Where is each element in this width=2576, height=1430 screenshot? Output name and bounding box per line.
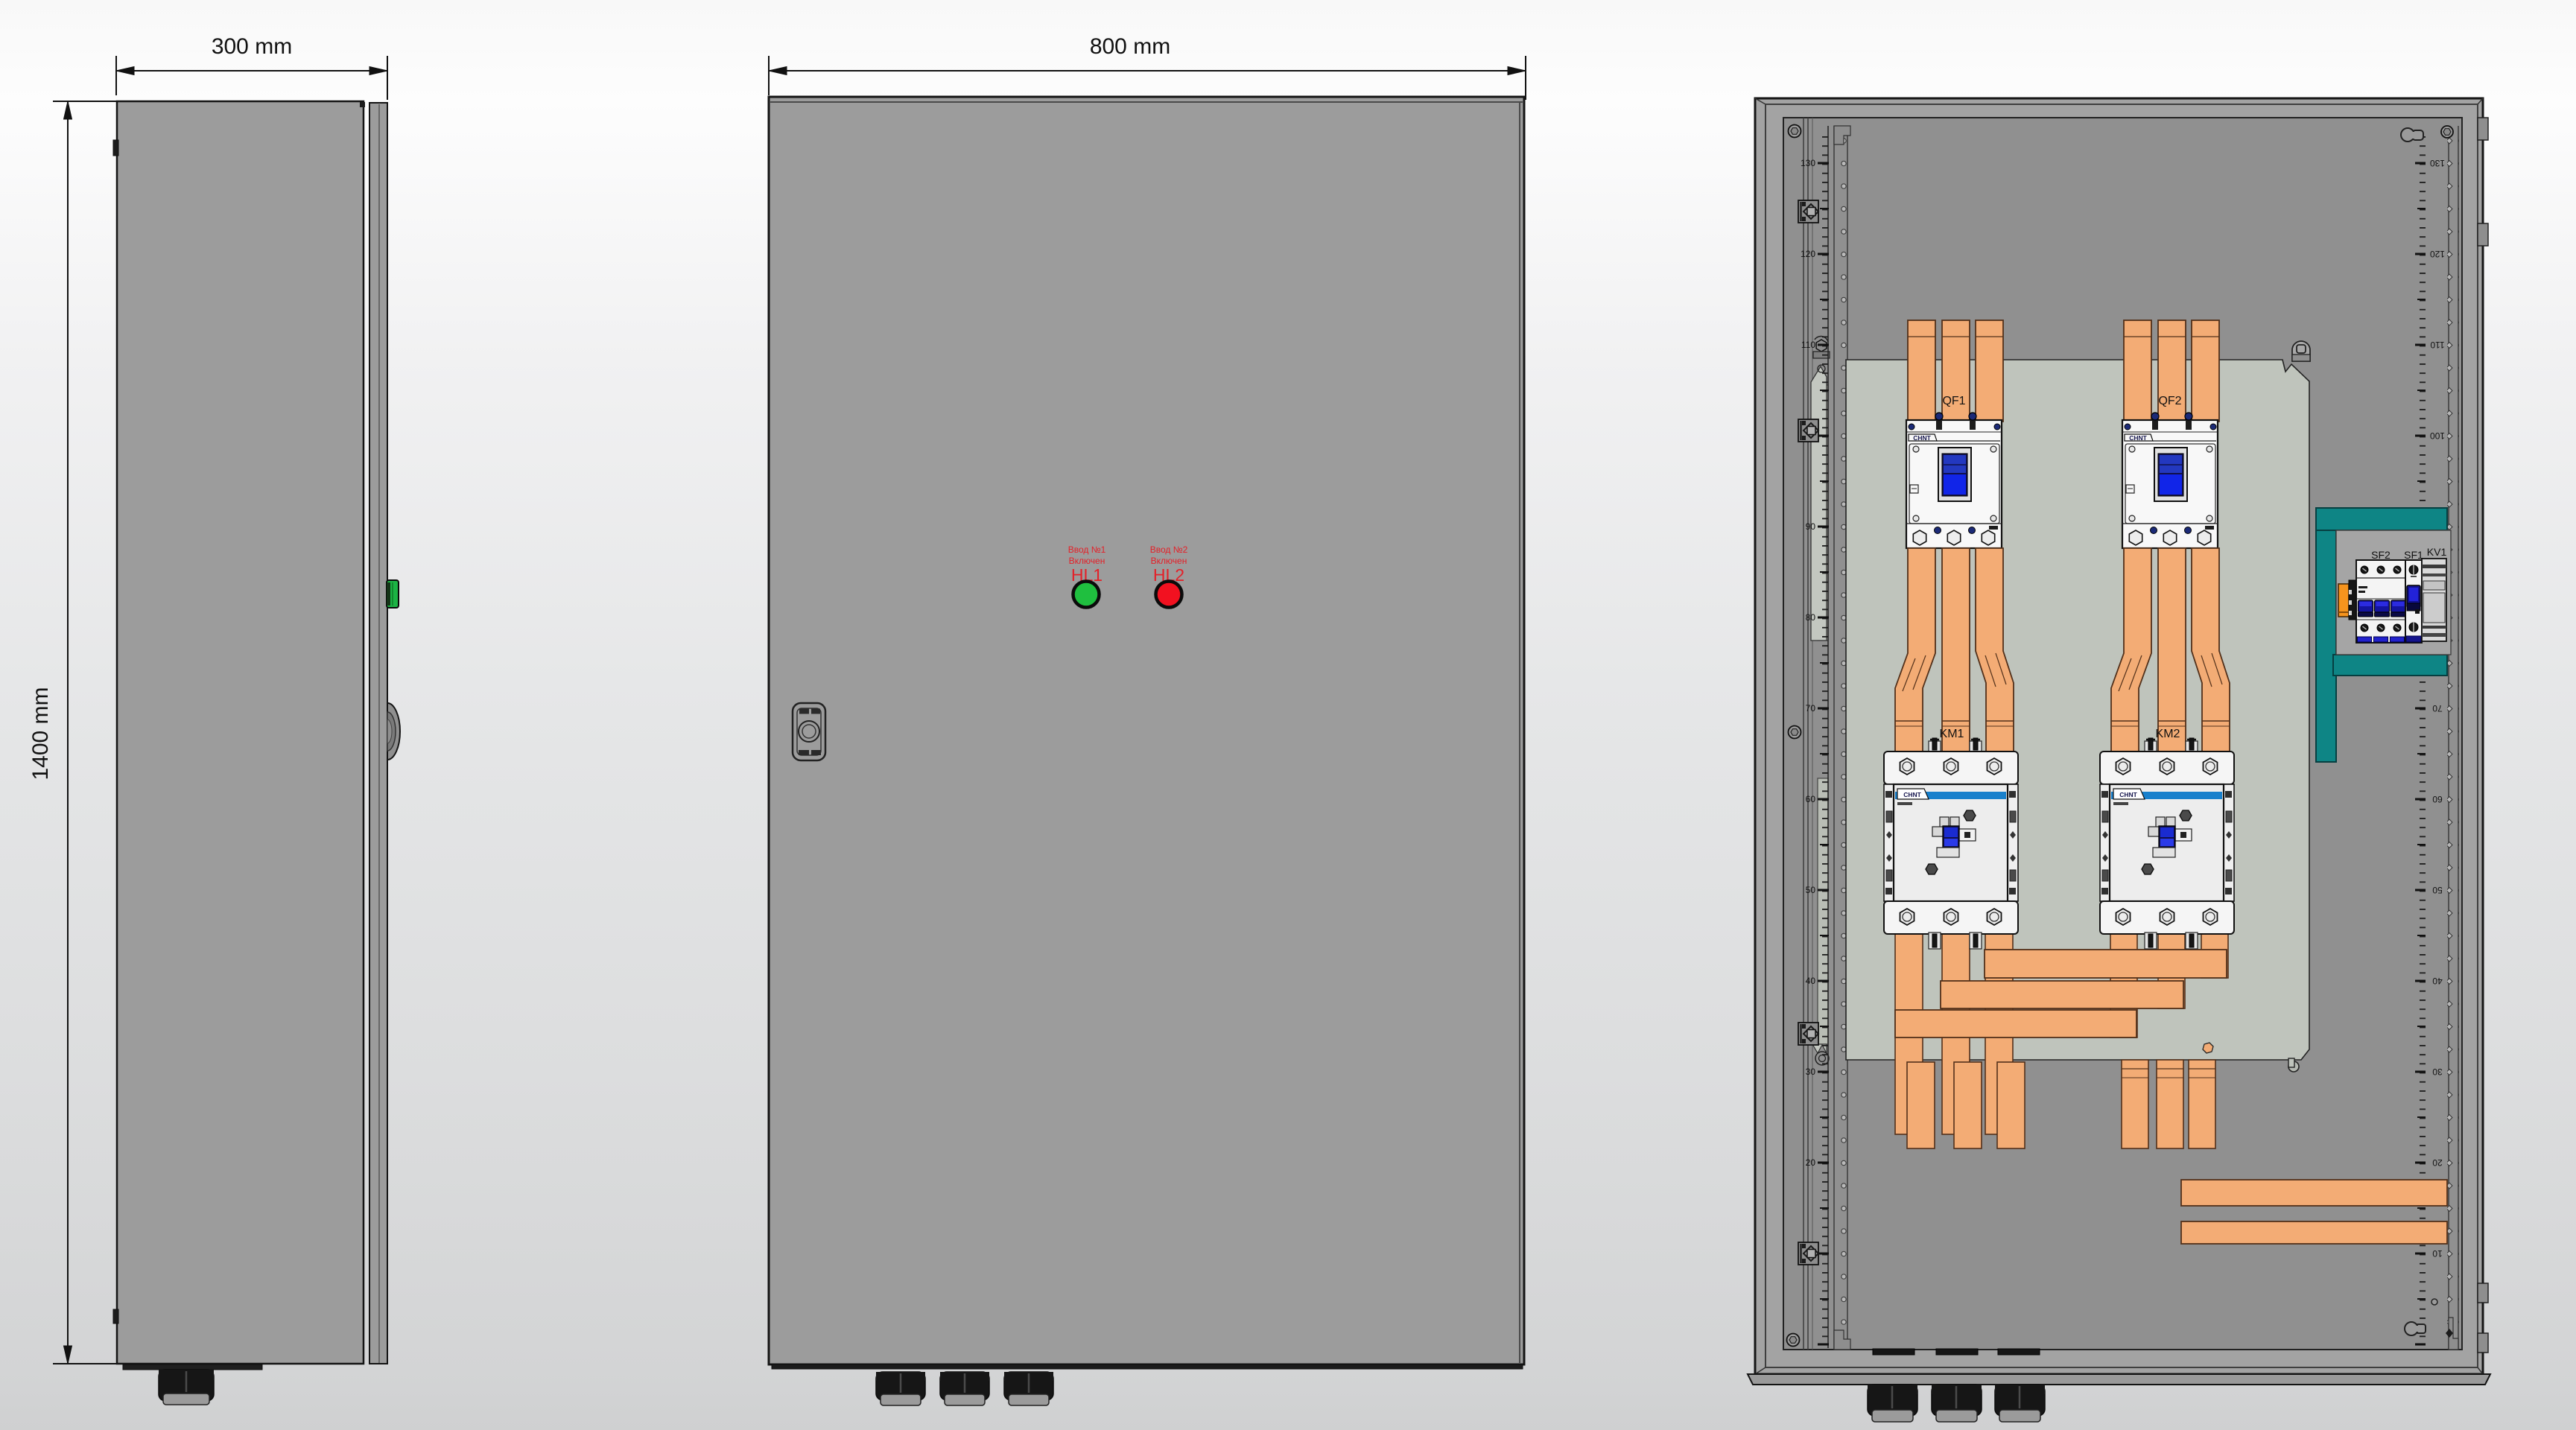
svg-text:20: 20 [2432,1157,2443,1168]
svg-text:30: 30 [2432,1067,2443,1077]
svg-text:10: 10 [2432,1248,2443,1259]
svg-text:80: 80 [1806,612,1816,623]
svg-text:CHNT: CHNT [2129,434,2147,442]
svg-text:SF2: SF2 [2371,549,2391,561]
svg-text:KV1: KV1 [2427,546,2447,558]
svg-text:CHNT: CHNT [1913,434,1931,442]
svg-text:800 mm: 800 mm [1090,34,1170,59]
svg-text:KM1: KM1 [1940,728,1964,740]
svg-text:30: 30 [1806,1067,1816,1077]
svg-text:90: 90 [1806,521,1816,532]
svg-text:120: 120 [1801,249,1815,259]
svg-text:50: 50 [1806,885,1816,895]
svg-text:CHNT: CHNT [1903,791,1921,798]
svg-text:60: 60 [2432,794,2443,804]
svg-text:CHNT: CHNT [2119,791,2137,798]
svg-text:Ввод №2: Ввод №2 [1150,544,1188,555]
svg-text:40: 40 [1806,976,1816,986]
svg-text:300 mm: 300 mm [212,34,292,59]
svg-text:70: 70 [2432,703,2443,714]
svg-text:Включен: Включен [1151,556,1187,566]
svg-text:70: 70 [1806,703,1816,714]
svg-text:Ввод №1: Ввод №1 [1068,544,1106,555]
svg-text:20: 20 [1806,1157,1816,1168]
svg-text:110: 110 [1801,340,1815,350]
svg-text:QF2: QF2 [2158,395,2181,407]
svg-text:50: 50 [2432,885,2443,895]
svg-text:130: 130 [2430,158,2445,168]
svg-text:40: 40 [2432,976,2443,986]
svg-text:110: 110 [2430,340,2444,350]
svg-text:120: 120 [2430,249,2445,259]
svg-text:KM2: KM2 [2156,728,2180,740]
svg-text:QF1: QF1 [1942,395,1965,407]
svg-text:60: 60 [1806,794,1816,804]
svg-text:SF1: SF1 [2404,549,2423,561]
svg-text:Включен: Включен [1069,556,1105,566]
svg-text:100: 100 [2430,430,2445,441]
svg-text:130: 130 [1801,158,1815,168]
svg-text:1400 mm: 1400 mm [28,687,53,780]
